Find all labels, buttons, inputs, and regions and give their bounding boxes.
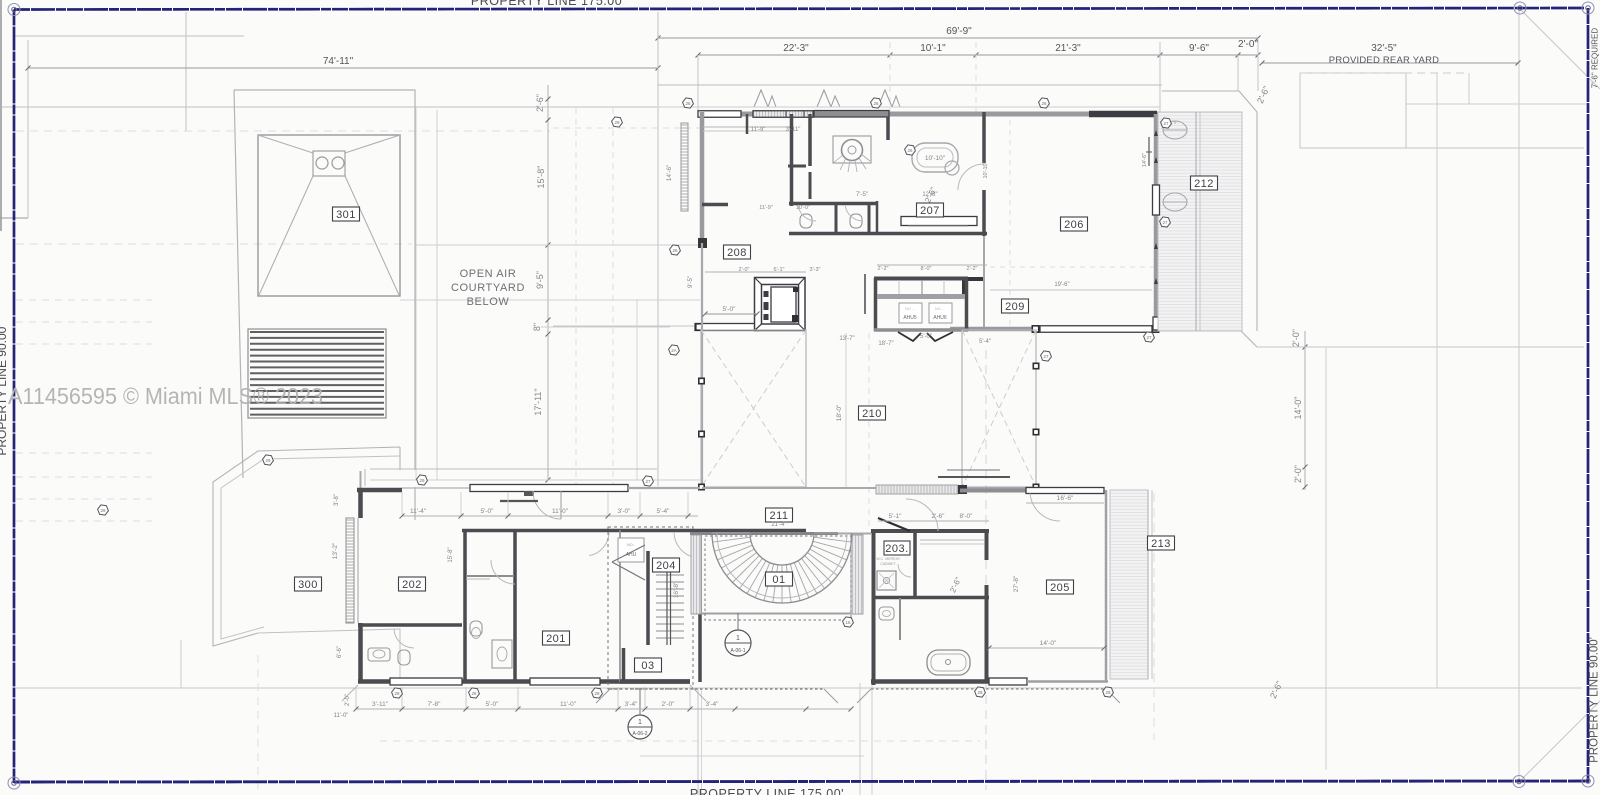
svg-text:18'-7": 18'-7": [878, 341, 893, 347]
svg-text:28: 28: [471, 691, 477, 696]
svg-text:29: 29: [614, 120, 620, 125]
svg-text:21'-3": 21'-3": [1055, 43, 1081, 54]
svg-text:2'-0": 2'-0": [1293, 465, 1303, 483]
svg-text:1: 1: [638, 719, 642, 726]
svg-text:2'-0": 2'-0": [345, 694, 351, 706]
svg-text:03: 03: [641, 660, 654, 672]
svg-text:28: 28: [594, 691, 600, 696]
svg-text:A11456595 © Miami MLS® 2023: A11456595 © Miami MLS® 2023: [8, 383, 323, 409]
svg-text:14'-0": 14'-0": [1293, 397, 1303, 420]
svg-text:5'-1": 5'-1": [889, 513, 903, 520]
svg-text:7'-8": 7'-8": [428, 701, 442, 708]
svg-text:11'-9": 11'-9": [759, 205, 773, 211]
svg-text:204: 204: [656, 560, 676, 572]
svg-text:9'-6": 9'-6": [1189, 43, 1209, 54]
svg-text:2'-0": 2'-0": [662, 701, 676, 708]
svg-text:11'-9": 11'-9": [751, 127, 766, 133]
svg-text:5'-0": 5'-0": [486, 701, 500, 708]
svg-text:10'-0": 10'-0": [796, 205, 810, 211]
svg-text:13'-2": 13'-2": [332, 542, 339, 559]
svg-text:203.: 203.: [885, 543, 908, 555]
svg-text:29: 29: [100, 508, 106, 513]
svg-text:3'-8": 3'-8": [334, 494, 340, 506]
svg-text:26: 26: [873, 101, 879, 106]
svg-text:300: 300: [298, 579, 318, 591]
svg-text:NO ...: NO ...: [905, 307, 915, 311]
svg-text:27: 27: [1163, 121, 1169, 126]
svg-text:28: 28: [394, 691, 400, 696]
svg-text:27: 27: [1162, 220, 1168, 225]
svg-text:10'-10": 10'-10": [983, 161, 989, 178]
svg-text:OPEN AIR: OPEN AIR: [460, 268, 517, 280]
svg-text:2'-2": 2'-2": [967, 266, 978, 272]
svg-text:5'-0": 5'-0": [481, 508, 495, 515]
svg-text:3'-4": 3'-4": [625, 701, 639, 708]
svg-text:2'-6": 2'-6": [535, 94, 545, 112]
svg-text:212: 212: [1194, 178, 1214, 190]
svg-text:3'-11": 3'-11": [786, 127, 801, 133]
svg-text:7'-6" REQUIRED: 7'-6" REQUIRED: [1591, 28, 1600, 89]
svg-text:14'-6": 14'-6": [1142, 153, 1148, 167]
svg-text:PROPERTY LINE 175.00': PROPERTY LINE 175.00': [471, 0, 625, 8]
svg-text:11'-0": 11'-0": [334, 713, 349, 719]
svg-text:12'-8": 12'-8": [922, 192, 937, 198]
svg-text:9'-5": 9'-5": [688, 276, 694, 288]
svg-text:26: 26: [672, 248, 678, 253]
svg-text:13'-7": 13'-7": [839, 336, 854, 342]
svg-text:210: 210: [862, 408, 882, 420]
svg-text:5'-4": 5'-4": [657, 508, 671, 515]
svg-text:301: 301: [336, 209, 356, 221]
svg-text:69'-9": 69'-9": [946, 26, 972, 37]
svg-text:27: 27: [1043, 354, 1049, 359]
svg-text:15: 15: [845, 620, 851, 625]
svg-text:W.C. MIRROR: W.C. MIRROR: [876, 557, 900, 561]
svg-text:5'-4": 5'-4": [979, 339, 991, 345]
svg-text:213: 213: [1151, 538, 1171, 550]
svg-text:27'-8": 27'-8": [1013, 575, 1020, 592]
svg-text:2'-0": 2'-0": [1291, 329, 1301, 347]
svg-text:A-06-2: A-06-2: [632, 731, 647, 737]
svg-text:2'-2": 2'-2": [878, 266, 889, 272]
svg-text:BELOW: BELOW: [467, 296, 510, 308]
svg-text:A-06-1: A-06-1: [730, 648, 745, 654]
svg-text:205: 205: [1050, 582, 1070, 594]
svg-text:14'-0": 14'-0": [1040, 640, 1057, 647]
svg-text:PROVIDED REAR YARD: PROVIDED REAR YARD: [1329, 55, 1439, 66]
svg-text:11'-0": 11'-0": [560, 701, 577, 708]
svg-text:27: 27: [645, 479, 651, 484]
svg-text:8'-0": 8'-0": [921, 266, 932, 272]
svg-text:27: 27: [1146, 335, 1152, 340]
svg-text:PROPERTY LINE 175.00': PROPERTY LINE 175.00': [690, 787, 844, 795]
svg-text:NO..: NO..: [627, 542, 635, 547]
svg-text:9'-5": 9'-5": [535, 271, 545, 289]
svg-text:8'-0": 8'-0": [960, 513, 974, 520]
svg-text:209: 209: [1005, 301, 1025, 313]
svg-text:28: 28: [1105, 690, 1111, 695]
svg-text:10'-10": 10'-10": [925, 155, 946, 162]
svg-text:PROPERTY LINE 90.00': PROPERTY LINE 90.00': [1589, 637, 1600, 763]
svg-text:10'-1": 10'-1": [920, 43, 946, 54]
svg-text:16'-6": 16'-6": [1057, 495, 1074, 502]
svg-text:29: 29: [419, 478, 425, 483]
svg-text:15'-8": 15'-8": [448, 547, 454, 562]
svg-text:3'-11": 3'-11": [372, 701, 389, 708]
svg-text:208: 208: [727, 247, 747, 259]
svg-text:3'-4": 3'-4": [706, 701, 720, 708]
svg-text:74'-11": 74'-11": [323, 56, 354, 67]
svg-text:COURTYARD: COURTYARD: [451, 282, 525, 294]
svg-text:3'-3": 3'-3": [810, 267, 821, 273]
svg-text:21'-4": 21'-4": [771, 522, 786, 528]
svg-text:NO ...: NO ...: [935, 307, 945, 311]
svg-text:AHU5: AHU5: [903, 315, 917, 321]
svg-text:206: 206: [1064, 219, 1084, 231]
svg-text:15'-8": 15'-8": [536, 166, 546, 189]
svg-text:14'-6": 14'-6": [666, 164, 673, 181]
svg-text:5'-0": 5'-0": [723, 306, 737, 313]
svg-text:1: 1: [736, 635, 740, 642]
svg-text:22'-3": 22'-3": [783, 43, 809, 54]
svg-text:2A: 2A: [671, 348, 677, 353]
svg-text:AHU6: AHU6: [933, 315, 947, 321]
svg-text:2'-0": 2'-0": [1238, 39, 1258, 50]
svg-text:26: 26: [685, 101, 691, 106]
svg-text:29: 29: [265, 458, 271, 463]
svg-text:202: 202: [402, 579, 422, 591]
svg-text:28: 28: [977, 690, 983, 695]
svg-text:17'-11": 17'-11": [533, 388, 543, 415]
svg-text:11'-4": 11'-4": [410, 508, 427, 515]
svg-text:207: 207: [920, 205, 940, 217]
svg-text:2'-6": 2'-6": [932, 513, 946, 520]
svg-text:211: 211: [769, 510, 788, 522]
svg-text:32'-5": 32'-5": [1371, 43, 1397, 54]
svg-text:8": 8": [532, 323, 542, 331]
svg-text:11'-0": 11'-0": [552, 508, 569, 515]
svg-text:6'-6": 6'-6": [337, 646, 343, 658]
svg-text:26: 26: [907, 148, 913, 153]
svg-text:AHU: AHU: [626, 552, 637, 558]
svg-text:5'-0": 5'-0": [920, 334, 932, 340]
svg-text:01: 01: [772, 574, 785, 586]
svg-text:CABINET: CABINET: [880, 562, 896, 566]
svg-text:3'-0": 3'-0": [618, 508, 632, 515]
svg-text:7'-5": 7'-5": [856, 192, 868, 198]
svg-text:26: 26: [1041, 101, 1047, 106]
svg-text:201: 201: [546, 633, 566, 645]
svg-text:18'-0": 18'-0": [836, 404, 843, 421]
svg-text:19'-6": 19'-6": [1054, 282, 1069, 288]
